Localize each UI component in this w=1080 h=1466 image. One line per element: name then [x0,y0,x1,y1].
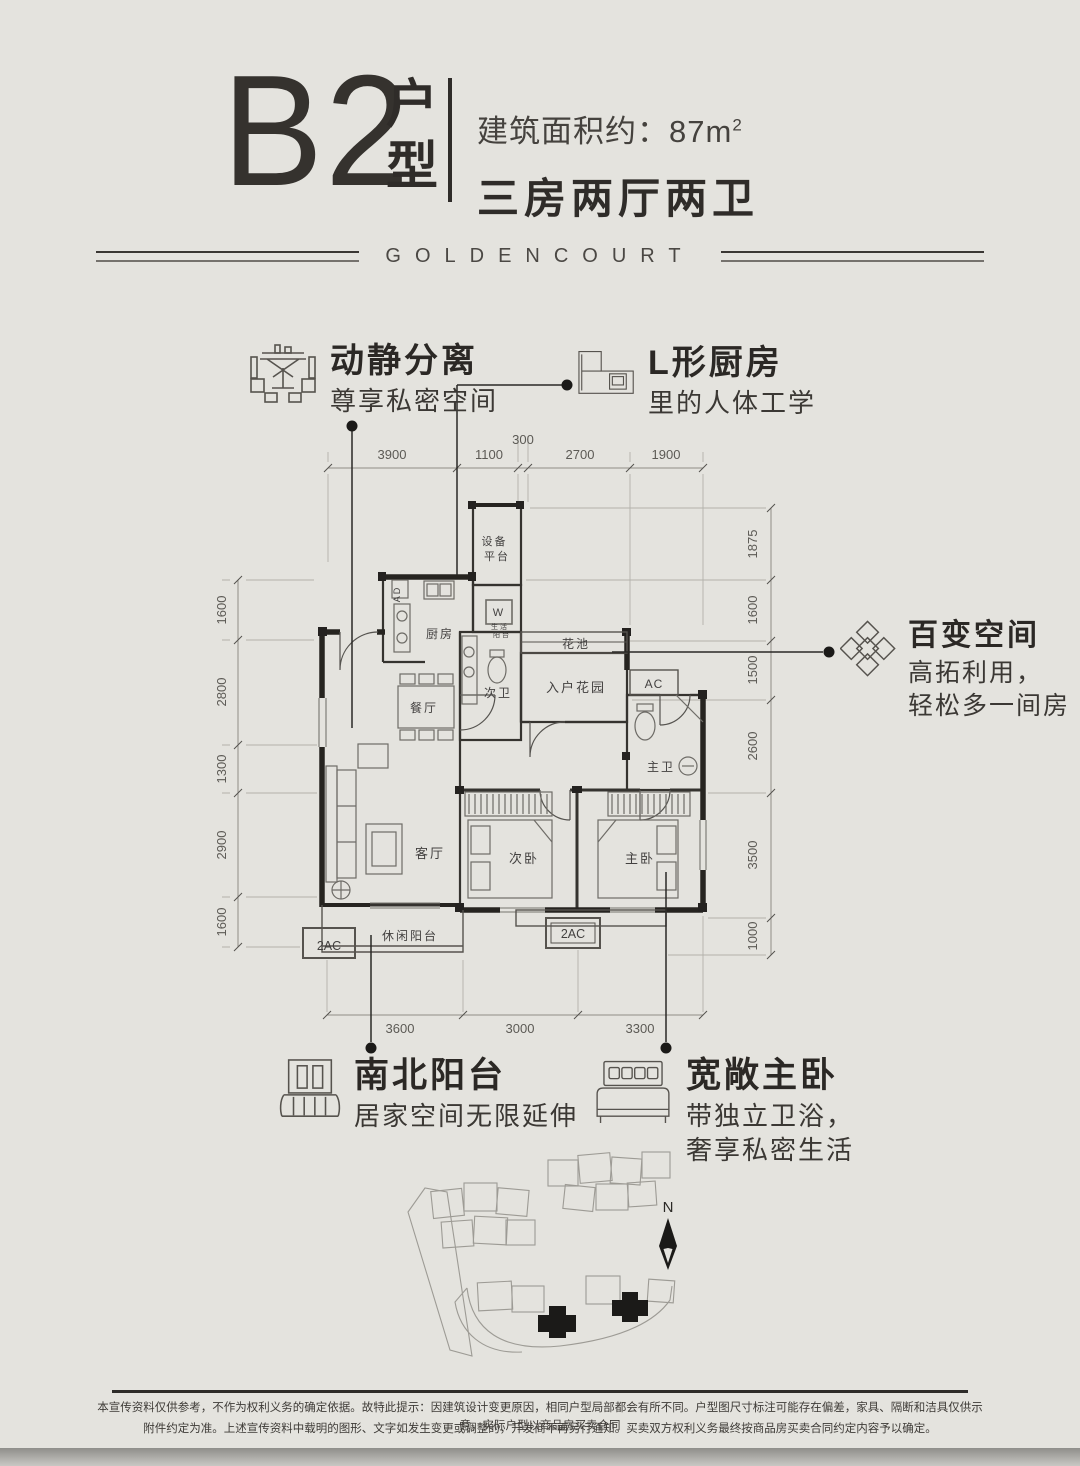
dim-left-1: 1600 [214,596,229,625]
callout-subtitle: 里的人体工学 [648,387,816,420]
dimension-labels: 3900 1100 300 2700 1900 1600 2800 1300 2… [214,432,760,1036]
label-2ac-mid: 2AC [561,927,585,941]
page-bottom-edge [0,1448,1080,1466]
label-bed1: 主卧 [625,851,655,866]
dining-table-icon [248,344,318,404]
callout-subtitle: 居家空间无限延伸 [354,1100,578,1133]
label-equipment-platform: 设备 平台 [481,534,512,563]
callout-flexible-space: 百变空间 高拓利用， 轻松多一间房 [840,620,1070,722]
callout-subtitle-1: 带独立卫浴， [686,1100,854,1133]
dim-top-4: 2700 [566,447,595,462]
dim-right-5: 3500 [745,841,760,870]
label-dining: 餐厅 [410,700,438,715]
north-compass: N [659,1199,677,1270]
bed-icon [592,1058,674,1130]
dim-top-1: 3900 [378,447,407,462]
label-entry-garden: 入户花园 [546,680,606,695]
callout-north-south-balcony: 南北阳台 居家空间无限延伸 [278,1058,578,1132]
dim-left-4: 2900 [214,831,229,860]
dim-right-3: 1500 [745,656,760,685]
dim-bottom-1: 3600 [386,1021,415,1036]
callout-title: 南北阳台 [354,1058,578,1095]
label-bath1: 主卫 [647,760,675,774]
label-bed2: 次卧 [509,851,539,866]
callout-title: L形厨房 [648,346,816,382]
footer-rule [112,1390,968,1393]
extension-lines [222,436,766,1012]
label-ac: AC [645,677,664,691]
label-leisure-balcony: 休闲阳台 [382,928,438,943]
dim-top-3: 300 [512,432,534,447]
label-living: 客厅 [415,846,445,861]
dim-top-5: 1900 [652,447,681,462]
callout-subtitle-2: 轻松多一间房 [908,691,1070,722]
callout-subtitle-1: 高拓利用， [908,658,1070,689]
dim-right-2: 1600 [745,596,760,625]
disclaimer-line-2: 附件约定为准。上述宣传资料中载明的图形、文字如发生变更或调整的，开发商不再另行通… [90,1421,990,1439]
l-shape-kitchen-icon [572,346,636,410]
dim-bottom-3: 3300 [626,1021,655,1036]
north-label: N [663,1199,674,1216]
callout-master-bedroom: 宽敞主卧 带独立卫浴， 奢享私密生活 [592,1058,854,1167]
callout-l-kitchen: L形厨房 里的人体工学 [572,346,816,419]
floorplan-poster: B2 户型 建筑面积约：87m2 三房两厅两卫 GOLDENCOURT [0,0,1080,1466]
label-utility-balcony: 生活 阳台 [491,622,513,639]
callout-title: 宽敞主卧 [686,1058,854,1095]
dim-left-5: 1600 [214,908,229,937]
label-washer: W [493,607,505,619]
label-ad: AD [392,586,402,603]
building-cluster-a [431,1183,535,1248]
dim-left-3: 1300 [214,755,229,784]
interior-walls [322,505,703,910]
label-2ac-left: 2AC [317,939,341,953]
callout-subtitle-2: 奢享私密生活 [686,1134,854,1167]
callout-subtitle: 尊享私密空间 [330,385,498,418]
site-plan [408,1152,675,1356]
dim-right-6: 1000 [745,922,760,951]
floor-plan-svg: 3900 1100 300 2700 1900 1600 2800 1300 2… [0,0,1080,1466]
callout-title: 百变空间 [908,620,1070,652]
callout-title: 动静分离 [330,344,498,380]
dim-bottom-2: 3000 [506,1021,535,1036]
dim-top-2: 1100 [475,447,503,462]
highlighted-buildings [538,1292,648,1338]
label-bath2: 次卫 [484,686,512,700]
label-flower-bed: 花池 [562,636,590,651]
balcony-icon [278,1058,342,1124]
dim-right-4: 2600 [745,732,760,761]
callout-quiet-separation: 动静分离 尊享私密空间 [248,344,498,417]
puzzle-blocks-icon [840,620,896,678]
dim-left-2: 2800 [214,678,229,707]
dim-right-1: 1875 [745,530,760,559]
label-kitchen: 厨房 [426,626,454,641]
